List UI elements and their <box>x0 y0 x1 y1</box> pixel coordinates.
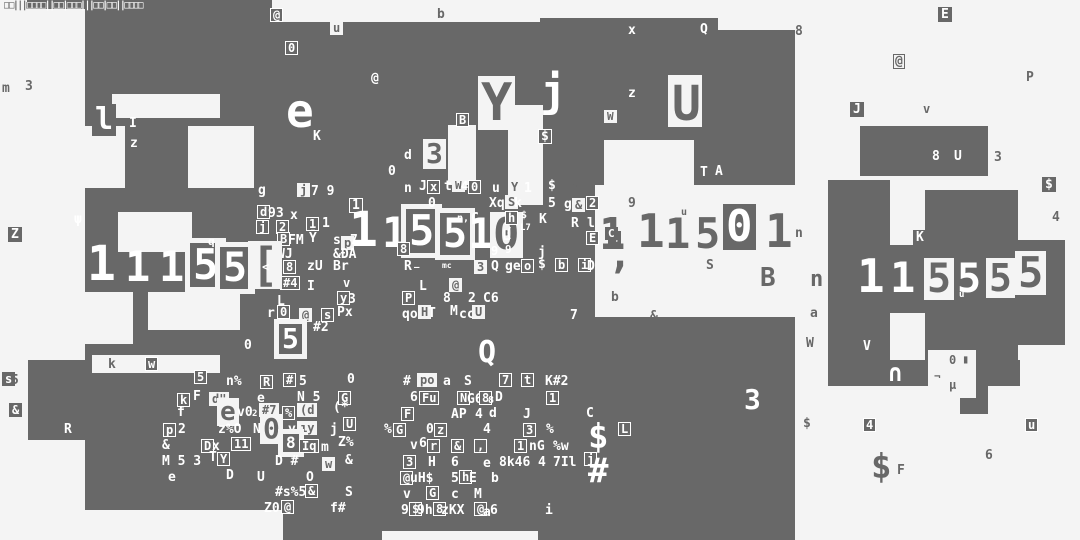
glyph: I <box>307 280 315 293</box>
glyph: M <box>474 488 482 501</box>
glyph: b <box>437 8 445 21</box>
glitch-collage-stage: □□|||□□□□□||□□|□□□|||□□|□□||□□□□@bu0xQ8E… <box>0 0 1080 540</box>
glyph: w <box>572 180 579 191</box>
glyph: , <box>474 439 487 453</box>
glyph: S <box>706 259 714 272</box>
glyph: 1 <box>665 213 690 255</box>
glyph: k <box>514 197 522 210</box>
glyph: 0 <box>285 41 298 55</box>
glyph: v <box>403 488 411 501</box>
glyph: (d <box>297 403 317 417</box>
glyph: 5 <box>1015 251 1046 295</box>
glyph: c <box>451 488 459 501</box>
glyph: AP <box>451 408 467 421</box>
glyph: & <box>305 484 318 498</box>
glyph: j <box>297 183 310 197</box>
glyph: m <box>321 441 329 454</box>
glyph: r <box>267 307 275 320</box>
glyph: 1 <box>349 206 378 254</box>
glyph: 4 <box>863 418 876 432</box>
glyph: g <box>258 184 266 197</box>
bg-rect <box>448 125 476 185</box>
glyph: u <box>330 21 343 35</box>
glyph: v <box>410 439 418 452</box>
glyph: R <box>260 375 273 389</box>
glyph: 7 <box>499 373 512 387</box>
glyph: m <box>2 82 10 95</box>
glyph: h <box>505 211 518 225</box>
glyph: 5 <box>299 375 307 388</box>
glyph: @ <box>281 500 294 514</box>
glyph: B <box>456 113 469 127</box>
glyph: 1 <box>524 182 532 195</box>
glyph: D # <box>275 455 298 468</box>
glyph: 3 <box>744 386 761 414</box>
glyph: nG <box>529 440 545 453</box>
glyph: l <box>92 104 116 136</box>
glyph: a <box>443 375 451 388</box>
glyph: 3 <box>403 455 416 469</box>
glyph: ¬ <box>413 240 419 250</box>
glyph: 4 <box>1052 211 1060 224</box>
bg-rect <box>890 315 925 360</box>
glyph: M 5 3 <box>162 455 201 468</box>
glyph: d <box>489 407 497 420</box>
glyph: 0 <box>426 423 434 436</box>
glyph: O <box>306 471 314 484</box>
glyph: x <box>427 180 440 194</box>
glyph: & <box>345 454 353 467</box>
glyph: b <box>611 291 619 304</box>
glyph: ıy <box>297 421 317 435</box>
glyph: Z0 <box>264 502 280 515</box>
glyph: w <box>322 457 335 471</box>
glyph: P <box>1026 71 1034 84</box>
glyph: 6 <box>451 456 459 469</box>
glyph: & <box>162 439 170 452</box>
glyph: J <box>523 408 531 421</box>
glyph: 5 <box>190 243 221 287</box>
bg-rect <box>860 126 988 176</box>
glyph: $ <box>871 450 891 484</box>
glyph: & <box>650 310 658 323</box>
glyph: G <box>393 423 406 437</box>
glyph: W <box>806 337 814 350</box>
glyph: 5 <box>548 197 556 210</box>
glyph: 5 <box>194 370 207 384</box>
glyph: e <box>168 471 176 484</box>
glyph: R <box>64 423 72 436</box>
glyph: n <box>795 227 803 240</box>
glyph: 6 <box>985 449 993 462</box>
glyph: Fu <box>419 391 439 405</box>
glyph: n <box>810 269 823 291</box>
glyph: 2 <box>468 292 476 305</box>
glyph: k <box>108 358 116 371</box>
glyph: J <box>419 180 427 193</box>
glyph: n% <box>226 375 242 388</box>
glyph: % <box>546 423 554 436</box>
glyph: Q <box>478 338 496 368</box>
glyph: C <box>471 212 479 225</box>
glyph: 1 <box>546 391 559 405</box>
glyph: ( <box>505 227 513 240</box>
glyph: 0 <box>949 354 956 366</box>
glyph: L <box>419 280 427 293</box>
glyph: s <box>333 234 341 247</box>
bg-rect <box>85 292 133 344</box>
glyph: J <box>850 102 864 117</box>
glyph: 3 <box>474 260 487 274</box>
glyph: 1 <box>159 246 184 288</box>
glyph: 9 <box>628 197 636 210</box>
glyph: M <box>450 305 458 318</box>
glyph: H <box>428 456 436 469</box>
glyph: zKX <box>441 504 464 517</box>
glyph: 3 <box>523 423 536 437</box>
glyph: D <box>495 391 503 404</box>
glyph: Ȳ <box>309 232 317 245</box>
bg-rect <box>112 94 220 118</box>
glyph: l <box>587 217 595 230</box>
glyph: 2 <box>586 196 599 210</box>
glyph: Z <box>8 227 22 242</box>
glyph: U <box>672 80 701 128</box>
glyph: 5 <box>279 324 302 354</box>
glyph: 3 <box>25 80 33 93</box>
glyph: $ <box>538 258 546 271</box>
glyph: 5 <box>406 209 437 253</box>
glyph: w <box>145 357 158 371</box>
glyph: I <box>129 117 137 130</box>
glyph: v <box>340 276 353 290</box>
glyph: Q <box>700 23 708 36</box>
glyph: ψ <box>74 213 82 226</box>
glyph: x <box>290 209 298 222</box>
glyph: e <box>483 457 491 470</box>
glyph: ¬ <box>934 371 941 382</box>
glyph: 2 <box>252 410 257 419</box>
glyph: U <box>472 305 485 319</box>
glyph: C6 <box>483 292 499 305</box>
glyph: E <box>938 7 952 22</box>
glyph: z <box>434 423 447 437</box>
glyph: x <box>628 24 636 37</box>
glyph: v <box>923 103 930 115</box>
glyph: R <box>404 260 412 273</box>
glyph: b <box>555 258 568 272</box>
glyph: 4 <box>483 423 491 436</box>
glyph: @ <box>893 54 905 69</box>
glyph: a <box>810 307 818 320</box>
glyph: p <box>163 423 176 437</box>
glyph: T <box>700 166 708 179</box>
glyph: 1 <box>514 439 527 453</box>
glyph: F <box>193 390 201 403</box>
glyph: 1 <box>857 253 885 299</box>
glyph: 0 <box>244 339 252 352</box>
glyph: 3 <box>994 151 1002 164</box>
bg-rect <box>85 510 283 540</box>
glyph: b <box>491 472 499 485</box>
glyph: 5 <box>924 258 954 300</box>
glyph: d <box>404 149 412 162</box>
glyph: 8 <box>795 25 803 38</box>
glyph: r <box>427 439 440 453</box>
glyph: Z% <box>338 436 354 449</box>
bg-rect <box>718 0 800 30</box>
glyph: # <box>283 373 296 387</box>
glyph: 8 <box>283 260 296 274</box>
glyph: % <box>384 423 392 436</box>
glyph: 5 <box>11 374 19 387</box>
glyph: 2 <box>178 423 186 436</box>
glyph: 0 <box>260 414 283 444</box>
glyph: $ <box>1042 177 1056 192</box>
glyph: z%O <box>218 423 241 436</box>
glyph: T <box>209 451 217 464</box>
glyph: FM <box>288 234 304 247</box>
glyph: Br <box>333 260 349 273</box>
glyph: 0 <box>723 204 756 250</box>
glyph: @ <box>371 72 379 85</box>
glyph: U <box>954 150 962 163</box>
glyph: $ <box>588 420 608 454</box>
glyph: 0 <box>277 305 290 319</box>
glyph: u <box>1025 418 1038 432</box>
glyph: Xq <box>489 197 505 210</box>
glyph: F <box>897 464 905 477</box>
glyph: v0 <box>237 406 253 419</box>
glyph: 1 <box>87 240 116 288</box>
glyph: % <box>282 406 295 420</box>
glyph: 0 <box>388 165 396 178</box>
glyph: 93 <box>268 207 284 220</box>
glyph: 7 <box>570 309 578 322</box>
glyph: e <box>286 88 314 134</box>
glyph: u <box>681 208 687 218</box>
glyph: zU <box>307 260 323 273</box>
glyph: 8 <box>932 150 940 163</box>
glyph: 6 <box>490 504 498 517</box>
glyph: K#2 <box>545 375 568 388</box>
glyph: t <box>521 373 534 387</box>
glyph: j <box>256 220 269 234</box>
glyph: @ <box>299 308 312 322</box>
glyph: µ <box>949 379 956 391</box>
glyph: E <box>469 472 477 485</box>
glyph: 1 <box>125 246 150 288</box>
glyph: @ <box>270 8 283 22</box>
glyph: & <box>9 403 22 417</box>
glyph: $ <box>548 179 556 192</box>
glyph: B <box>760 265 776 291</box>
glyph: ∩ <box>888 361 902 385</box>
glyph: j <box>540 70 567 114</box>
glyph: Y <box>508 180 521 194</box>
glyph: U <box>257 471 265 484</box>
glyph: n, <box>457 214 469 224</box>
glyph: W <box>604 110 617 123</box>
glyph: f <box>177 406 185 419</box>
glyph: 5 <box>695 213 720 255</box>
glyph: — <box>414 264 419 273</box>
glyph: 0 <box>347 373 355 386</box>
glyph: 0 <box>428 197 436 210</box>
glyph: ▮ <box>962 353 969 365</box>
bg-rect <box>28 360 85 440</box>
glyph: #s%5 <box>275 486 306 499</box>
glyph: 9h <box>417 504 433 517</box>
glyph: uH$ <box>410 472 433 485</box>
glyph: 1 <box>765 208 793 254</box>
glyph: o <box>521 259 534 273</box>
glyph: Px <box>337 306 353 319</box>
glyph: 5 <box>986 258 1015 298</box>
glyph: K <box>913 230 927 245</box>
glyph: 2 <box>911 269 921 285</box>
glyph: G <box>426 486 439 500</box>
glyph: @ <box>449 278 462 292</box>
glyph: q <box>208 236 215 247</box>
bg-rect <box>828 360 1020 386</box>
glyph: 4 <box>475 408 483 421</box>
glyph: z <box>130 137 138 150</box>
glyph: 1 <box>322 217 330 230</box>
glyph: < <box>262 261 269 273</box>
glyph: 9 <box>401 504 409 517</box>
glyph: E <box>586 231 599 245</box>
glyph: R <box>571 217 579 230</box>
glyph: 1 <box>306 217 319 231</box>
glyph: Iq <box>299 439 319 453</box>
glyph: # <box>403 375 411 388</box>
glyph: 5 <box>451 472 459 485</box>
glyph: L <box>618 422 631 436</box>
glyph: i <box>545 504 553 517</box>
glyph: 8 <box>397 242 410 256</box>
bg-rect <box>148 292 240 330</box>
glyph: S <box>464 375 472 388</box>
glyph: 6 <box>410 391 418 404</box>
glyph: T <box>428 307 436 320</box>
glyph: D <box>587 260 595 273</box>
glyph: 11 <box>231 437 251 451</box>
bg-rect <box>188 126 254 188</box>
glyph: 0 <box>468 180 481 194</box>
glyph: D <box>226 469 234 482</box>
glyph: 8 <box>488 396 494 406</box>
glyph: L7 <box>520 224 531 233</box>
glyph: %w <box>553 440 569 453</box>
glyph: 5 <box>220 247 250 289</box>
glyph: $ <box>538 129 552 144</box>
glyph: $ <box>803 417 811 430</box>
glyph: qo <box>402 308 418 321</box>
glyph: A <box>712 164 726 179</box>
glyph: 7 9 <box>311 185 334 198</box>
glyph: K <box>313 130 321 143</box>
glyph: 7Il <box>553 456 576 469</box>
glyph: 9 <box>491 245 498 257</box>
glyph: 4 <box>538 456 546 469</box>
glyph: & <box>572 198 585 212</box>
glyph: V <box>863 340 871 353</box>
glyph: 6 <box>419 437 427 450</box>
glyph: □□□□||□□|□□□|||□□|□□||□□□□ <box>27 1 142 11</box>
glyph: #2 <box>313 321 329 334</box>
glyph: , <box>608 235 632 275</box>
bg-rect <box>272 0 540 22</box>
glyph: S <box>345 486 353 499</box>
glyph: j <box>330 423 338 436</box>
bg-rect <box>604 140 694 188</box>
glyph: po <box>417 373 437 387</box>
glyph: K <box>539 213 547 226</box>
glyph: t <box>444 180 452 193</box>
glyph: Y <box>217 452 230 466</box>
glyph: Q <box>491 260 499 273</box>
glyph: & <box>451 439 464 453</box>
glyph: P <box>402 291 415 305</box>
glyph: 1 <box>637 208 665 254</box>
glyph: 3 <box>423 139 446 169</box>
glyph: ge <box>505 260 521 273</box>
glyph: mc <box>442 262 452 270</box>
glyph: 8 <box>283 434 299 452</box>
glyph: Y <box>478 76 515 130</box>
glyph: z <box>628 87 636 100</box>
glyph: #4 <box>280 276 300 290</box>
glyph: 9 <box>505 244 512 255</box>
glyph: # <box>588 454 608 488</box>
glyph: g <box>564 198 572 211</box>
glyph: U <box>343 417 356 431</box>
glyph: f# <box>330 502 346 515</box>
bg-rect <box>382 531 538 540</box>
glyph: ü <box>959 291 964 300</box>
glyph: (* <box>333 401 349 414</box>
glyph: u <box>492 182 500 195</box>
glyph: F <box>401 407 414 421</box>
glyph: C <box>605 227 618 240</box>
glyph: $ <box>521 211 527 221</box>
glyph: 8k46 <box>499 456 530 469</box>
glyph: n <box>404 182 412 195</box>
